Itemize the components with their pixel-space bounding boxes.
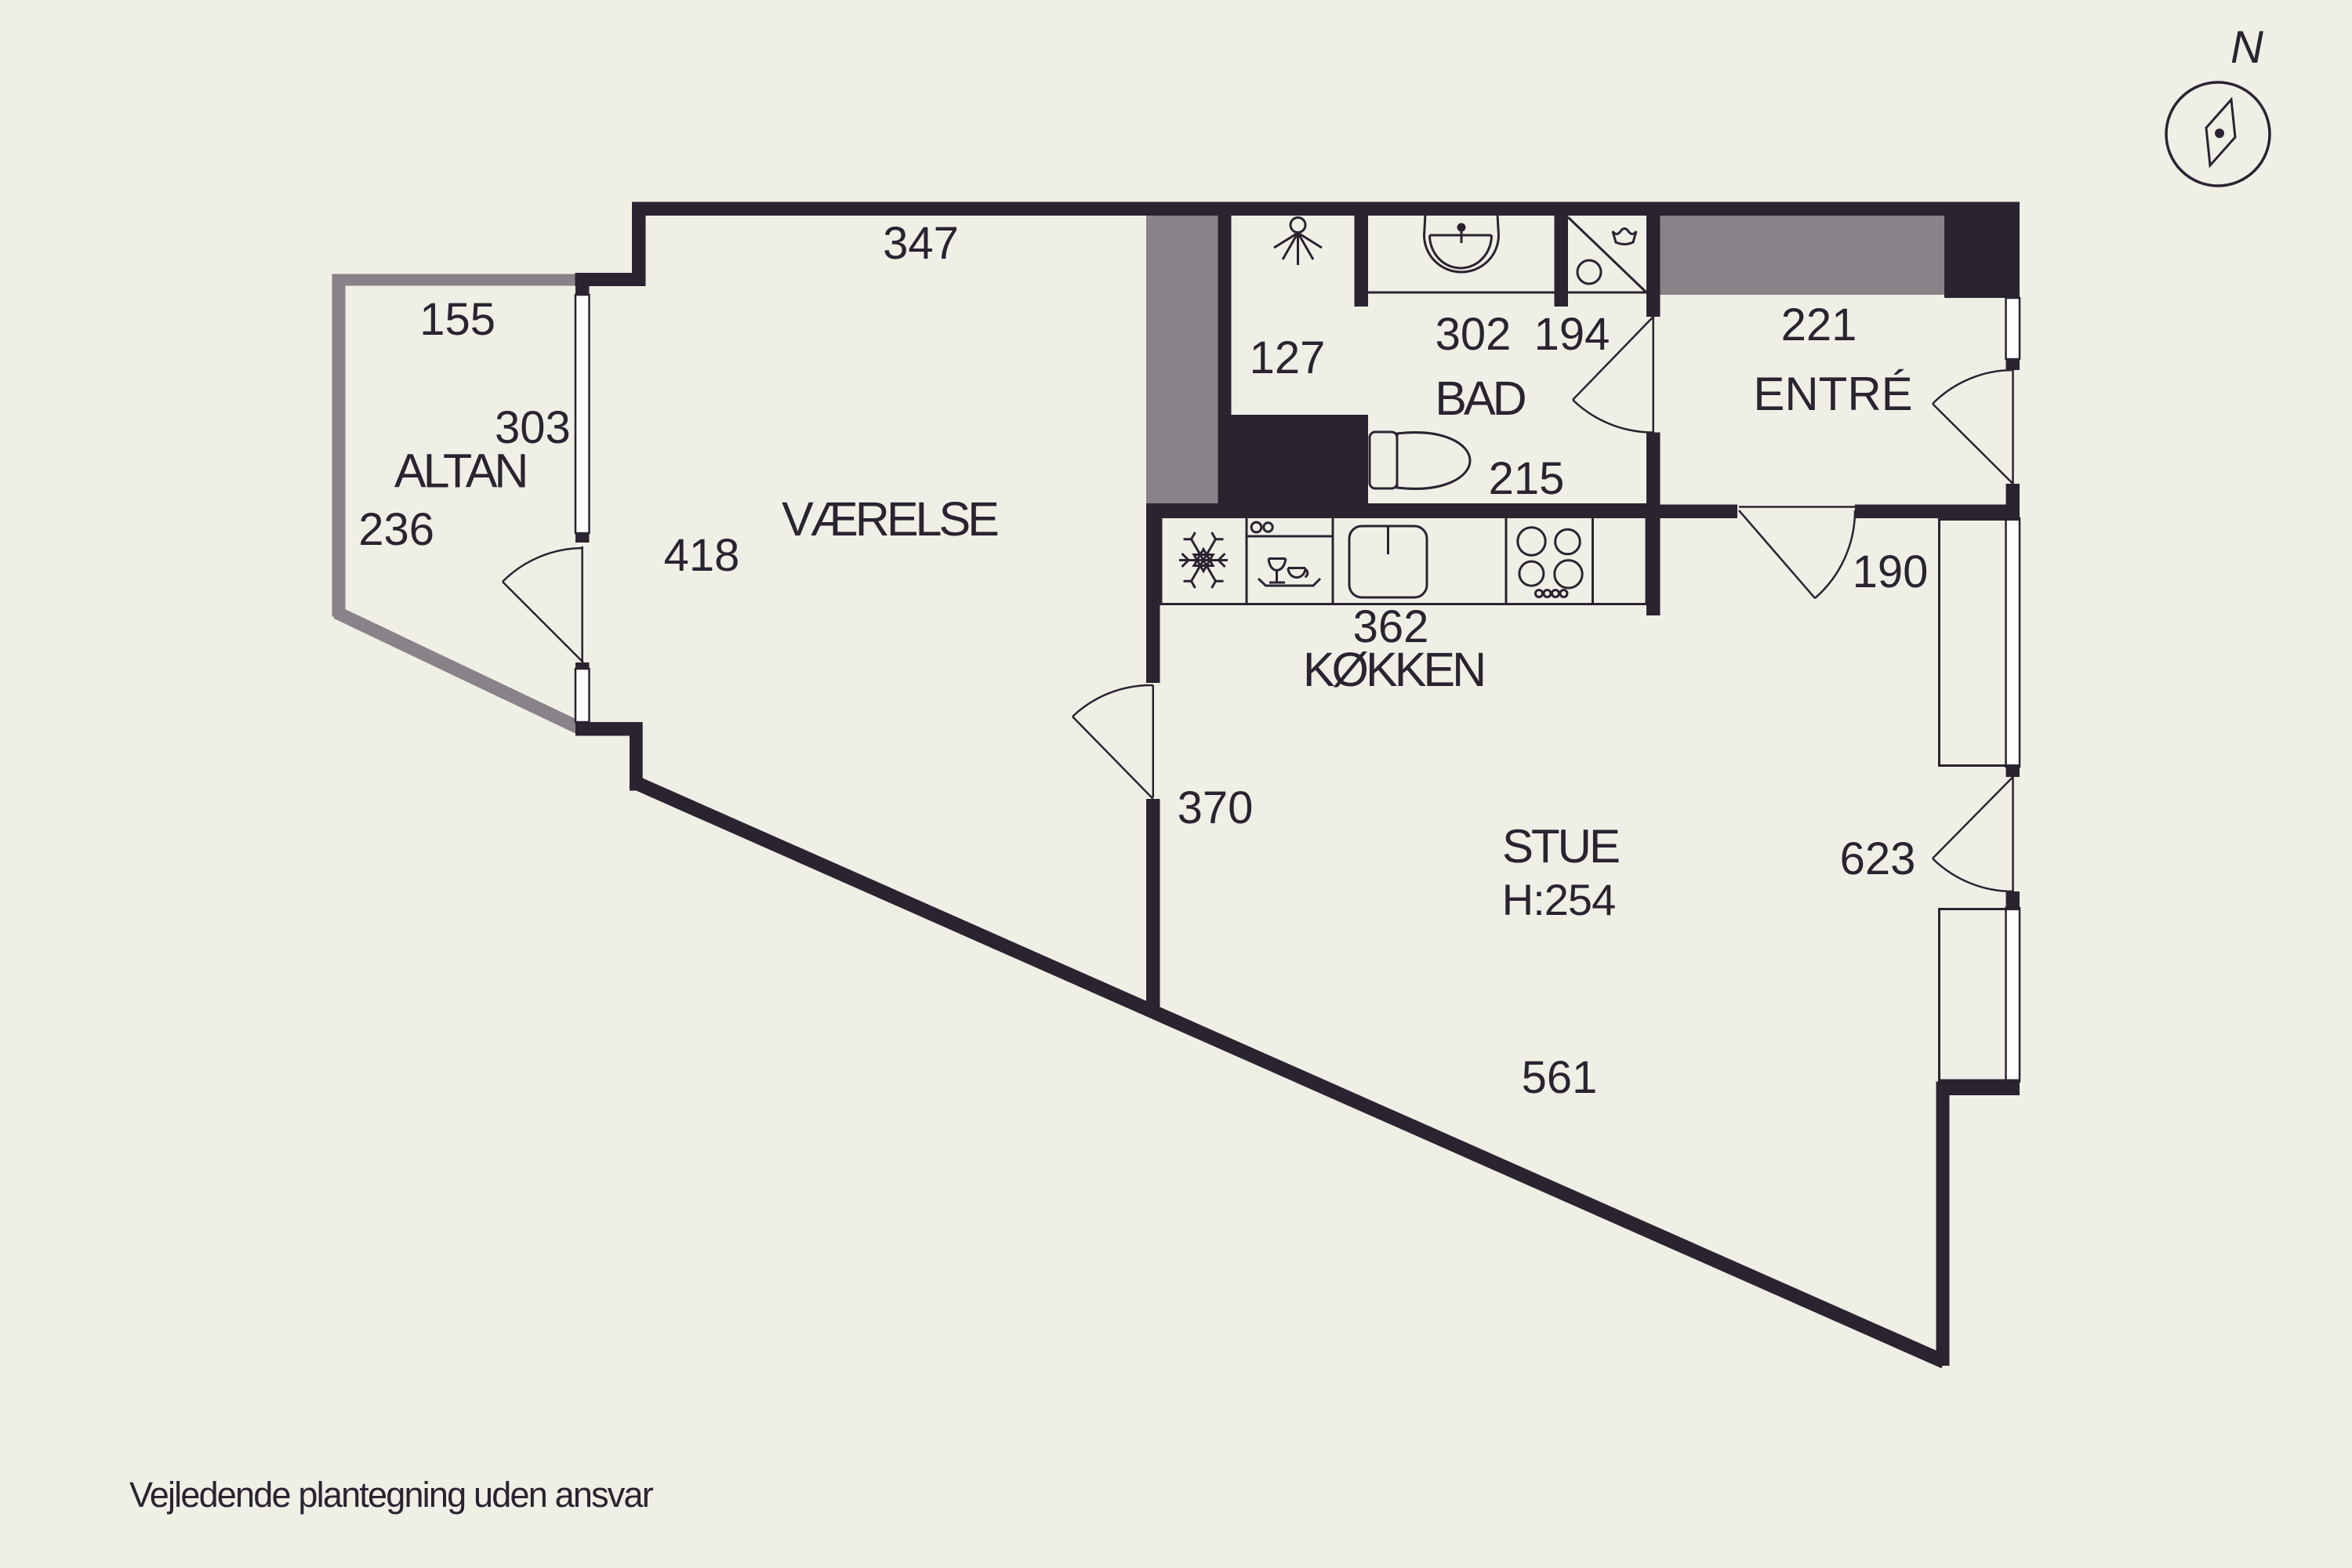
- svg-text:190: 190: [1853, 546, 1929, 597]
- svg-text:VÆRELSE: VÆRELSE: [782, 492, 998, 546]
- svg-text:ENTRÉ: ENTRÉ: [1753, 368, 1912, 420]
- svg-text:362: 362: [1353, 601, 1429, 652]
- svg-text:BAD: BAD: [1435, 372, 1525, 425]
- svg-text:302: 302: [1436, 309, 1512, 360]
- svg-text:127: 127: [1250, 332, 1326, 383]
- svg-text:303: 303: [495, 402, 571, 453]
- svg-text:236: 236: [358, 504, 434, 555]
- svg-text:370: 370: [1178, 782, 1254, 833]
- svg-text:623: 623: [1840, 833, 1916, 884]
- svg-text:N: N: [2230, 22, 2263, 73]
- svg-text:H:254: H:254: [1502, 875, 1615, 924]
- svg-text:155: 155: [419, 294, 495, 345]
- svg-text:221: 221: [1781, 299, 1857, 350]
- svg-text:418: 418: [664, 530, 740, 581]
- svg-text:194: 194: [1534, 309, 1610, 360]
- svg-text:Vejledende plantegning uden an: Vejledende plantegning uden ansvar: [129, 1475, 654, 1515]
- svg-text:347: 347: [883, 218, 959, 269]
- svg-text:215: 215: [1489, 453, 1565, 504]
- svg-text:STUE: STUE: [1502, 820, 1619, 873]
- svg-text:561: 561: [1522, 1052, 1598, 1103]
